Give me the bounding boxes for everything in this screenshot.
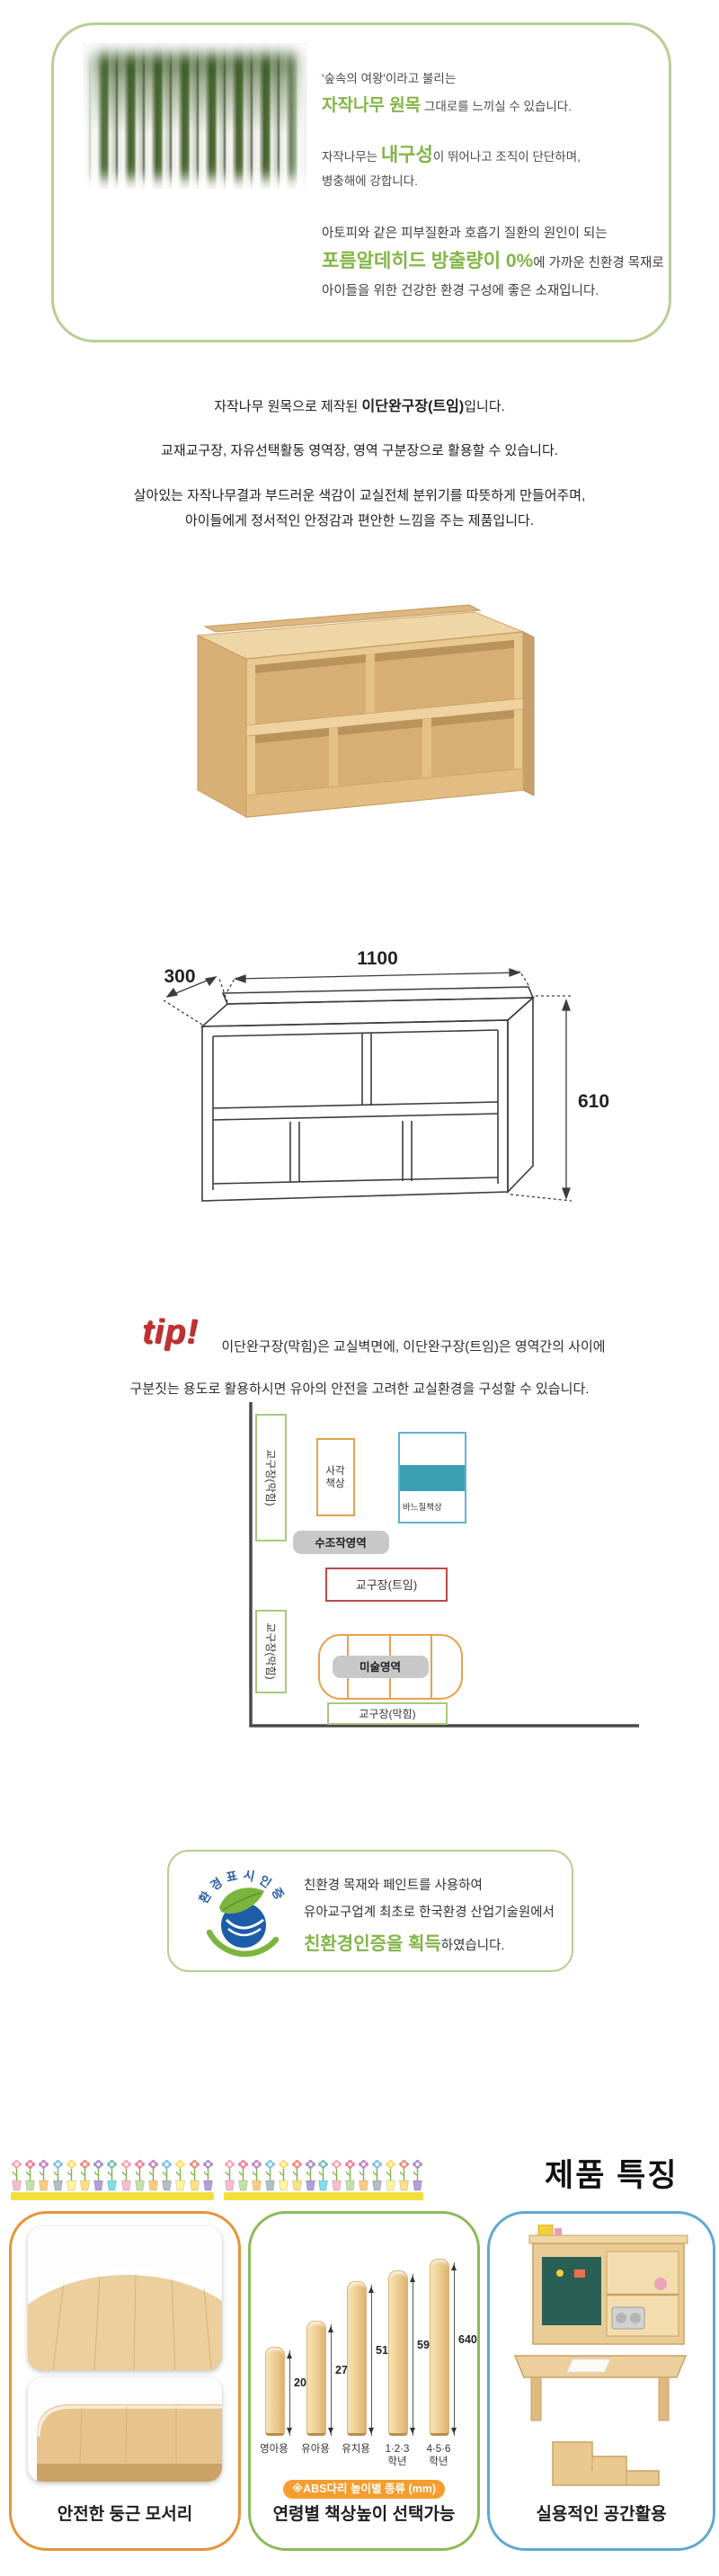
intro-line-7: 아이들을 위한 건강한 환경 구성에 좋은 소재입니다. (322, 280, 599, 299)
flower-pot-border-left (11, 2159, 214, 2200)
description-line-3: 살아있는 자작나무결과 부드러운 색감이 교실전체 분위기를 따뜻하게 만들어주… (0, 485, 719, 504)
intro-line-4: 병충해에 강합니다. (322, 171, 418, 189)
dimension-line (371, 2285, 372, 2436)
cert-line-1: 친환경 목재와 페인트를 사용하여 (304, 1875, 483, 1894)
diagram-square-desk-l2: 책상 (325, 1477, 345, 1489)
technical-drawing: 300 1100 610 (99, 939, 620, 1218)
feature-card-space-usage: 실용적인 공간활용 (487, 2211, 715, 2551)
leg-height-value: 640 (458, 2333, 477, 2346)
diagram-square-desk-l1: 사각 (325, 1465, 345, 1477)
intro-line-3: 자작나무는 내구성이 뛰어나고 조직이 단단하며, (322, 140, 581, 167)
description-line-1: 자작나무 원목으로 제작된 이단완구장(트임)입니다. (0, 394, 719, 415)
desk-with-hutch-photo (508, 2225, 695, 2494)
leg-age-label: 유치용 (342, 2443, 370, 2456)
leg-age-label: 영아용 (260, 2443, 288, 2456)
diagram-wall-cabinet-top: 교구장(막힘) (264, 1449, 277, 1506)
round-table-photo (28, 2226, 222, 2370)
intro-line-1: '숲속의 여왕'이라고 불리는 (322, 68, 456, 86)
intro-box: '숲속의 여왕'이라고 불리는 자작나무 원목 그대로를 느끼실 수 있습니다.… (51, 22, 671, 342)
birch-forest-image (83, 43, 307, 189)
tip-line-2: 구분짓는 용도로 활용하시면 유아의 안전을 고려한 교실환경을 구성할 수 있… (0, 1379, 719, 1398)
dim-height-label: 610 (578, 1091, 609, 1112)
feature-card-leg-heights: 200 영아용 270 유아용 510 유치용 590 1·2·3 학년 640… (248, 2211, 480, 2551)
description-line-4: 아이들에게 정서적인 안정감과 편안한 느낌을 주는 제품입니다. (0, 511, 719, 529)
leg-age-label: 1·2·3 학년 (386, 2443, 410, 2469)
yellow-bar (11, 2192, 214, 2200)
intro-line-5: 아토피와 같은 피부질환과 호흡기 질환의 원인이 되는 (322, 223, 608, 242)
certification-box: 환경표시인증 친환경 목재와 페인트를 사용하여 유아교구업계 최초로 한국환경… (167, 1850, 573, 1972)
diagram-art-area: 미술영역 (359, 1660, 401, 1674)
feature-card-rounded-corners: 안전한 둥근 모서리 (9, 2211, 241, 2551)
product-photo-shelf (153, 580, 566, 840)
tip-line-1: 이단완구장(막힘)은 교실벽면에, 이단완구장(트임)은 영역간의 사이에 (162, 1337, 665, 1355)
cert-line-2: 유아교구업계 최초로 한국환경 산업기술원에서 (304, 1902, 555, 1921)
diagram-open-cabinet: 교구장(트임) (356, 1578, 417, 1592)
intro-line-2: 자작나무 원목 그대로를 느끼실 수 있습니다. (322, 92, 572, 116)
abs-leg-note-pill: ※ABS다리 높이별 종류 (mm) (283, 2480, 445, 2499)
flower-pot-border-right (224, 2159, 423, 2200)
yellow-bar (224, 2192, 423, 2200)
flower-pot-icons (11, 2159, 214, 2191)
dimension-line (331, 2324, 332, 2436)
dimension-line (289, 2350, 290, 2436)
table-edge-photo (28, 2377, 222, 2482)
leg-age-label: 4·5·6 학년 (427, 2443, 451, 2469)
leg-bar (388, 2270, 408, 2436)
card-caption-leg-heights: 연령별 책상높이 선택가능 (251, 2500, 477, 2525)
leg-bar (265, 2347, 285, 2436)
dimension-line (413, 2274, 413, 2436)
intro-line-6: 포름알데히드 방출량이 0%에 가까운 친환경 목재로 (322, 246, 664, 273)
dim-width-label: 1100 (357, 948, 398, 969)
card-caption-rounded-corners: 안전한 둥근 모서리 (12, 2500, 238, 2525)
leg-height-diagram: 200 영아용 270 유아용 510 유치용 590 1·2·3 학년 640… (251, 2256, 477, 2436)
cert-line-3: 친환경인증을 획득하였습니다. (304, 1929, 505, 1955)
dim-depth-label: 300 (164, 966, 195, 987)
card-caption-space-usage: 실용적인 공간활용 (490, 2500, 713, 2525)
diagram-manipulative-area: 수조작영역 (315, 1536, 367, 1550)
eco-certification-logo: 환경표시인증 (192, 1861, 293, 1961)
classroom-layout-diagram: 교구장(막힘) 사각 책상 바느질책상 수조작영역 교구장(트임) 교구장(막힘… (238, 1400, 643, 1733)
leg-bar (430, 2259, 449, 2436)
diagram-bottom-cabinet: 교구장(막힘) (359, 1708, 415, 1720)
features-heading: 제품 특징 (545, 2150, 715, 2196)
leg-age-label: 유아용 (301, 2443, 330, 2456)
flower-pot-icons (224, 2159, 423, 2191)
leg-bar (306, 2321, 326, 2436)
diagram-wall-cabinet-bottom: 교구장(막힘) (264, 1622, 277, 1679)
leg-bar (347, 2281, 367, 2436)
description-line-2: 교재교구장, 자유선택활동 영역장, 영역 구분장으로 활용할 수 있습니다. (0, 440, 719, 459)
diagram-sewing-desk: 바느질책상 (403, 1502, 442, 1513)
dimension-line (454, 2262, 455, 2436)
